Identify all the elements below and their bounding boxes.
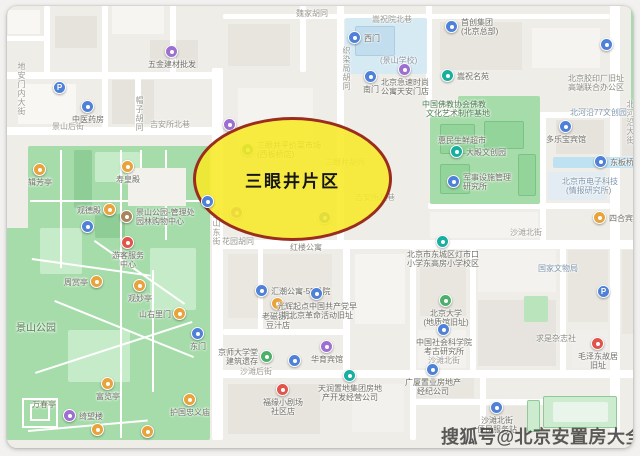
street-label: 景山公园 [16, 324, 56, 333]
poi-dot-icon [138, 284, 142, 288]
street-label: 惠民生鲜超市 [438, 136, 486, 145]
poi-dot-icon [325, 345, 329, 349]
road [7, 36, 45, 41]
poi-label: 中医药房 [28, 115, 148, 124]
building-block [228, 24, 290, 66]
poi-dot-icon [403, 68, 407, 72]
poi-dot-icon [348, 374, 352, 378]
poi-label: 五金建材批发 [112, 60, 232, 69]
poi-marker[interactable] [436, 235, 449, 248]
poi-marker[interactable] [490, 401, 503, 414]
park-path [152, 270, 154, 392]
poi-marker[interactable] [320, 340, 333, 353]
building-block [8, 10, 40, 34]
poi-label: 绮望楼 [79, 412, 103, 421]
poi-marker[interactable] [343, 369, 356, 382]
poi-dot-icon [38, 168, 42, 172]
poi-dot-icon [146, 430, 150, 434]
poi-dot-icon [450, 25, 454, 29]
poi-label: 首创集团(北京总部) [461, 18, 498, 36]
street-label: (情报研究所) [566, 186, 611, 195]
poi-dot-icon [596, 342, 600, 346]
street-label: 北河沿77文创园 [570, 108, 627, 117]
poi-label: 中国社会科学院考古研究所 [384, 338, 504, 356]
poi-marker[interactable] [348, 31, 361, 44]
poi-label: 观妙亭 [80, 294, 200, 303]
poi-marker[interactable] [364, 70, 377, 83]
poi-marker[interactable] [101, 377, 114, 390]
poi-dot-icon [108, 208, 112, 212]
poi-dot-icon [106, 382, 110, 386]
street-label: 北河沿大街 [626, 100, 633, 145]
building-block [622, 250, 633, 334]
poi-dot-icon [126, 165, 130, 169]
road [102, 6, 108, 129]
street-label: 红楼公寓 [290, 243, 322, 252]
poi-marker[interactable] [398, 63, 411, 76]
park-path [140, 150, 142, 170]
highlight-label: 三眼井片区 [245, 167, 340, 192]
poi-dot-icon [95, 280, 99, 284]
poi-dot-icon [564, 125, 568, 129]
building-block [112, 6, 164, 34]
poi-marker[interactable] [591, 337, 604, 350]
poi-label: 京师大学堂建筑遗存 [218, 348, 258, 366]
poi-dot-icon [605, 43, 609, 47]
poi-marker[interactable] [173, 307, 186, 320]
poi-dot-icon [281, 388, 285, 392]
poi-dot-icon [369, 75, 373, 79]
poi-marker[interactable] [165, 45, 178, 58]
poi-dot-icon [598, 216, 602, 220]
road [44, 6, 50, 74]
poi-dot-icon [206, 200, 210, 204]
poi-label: 广厦置业房地产经纪公司 [373, 378, 493, 396]
poi-marker[interactable]: P [53, 81, 66, 94]
poi-marker[interactable] [437, 323, 450, 336]
poi-dot-icon [86, 225, 90, 229]
park-area [553, 402, 608, 422]
poi-marker[interactable] [310, 287, 323, 300]
poi-dot-icon [353, 36, 357, 40]
street-label: 文化艺术制作基地 [426, 109, 490, 118]
poi-label: 东板桥 [610, 158, 633, 167]
road [212, 370, 633, 378]
poi-marker[interactable] [33, 163, 46, 176]
poi-marker[interactable] [90, 275, 103, 288]
street-label: 国家文物局 [538, 264, 578, 273]
road [212, 68, 223, 440]
poi-label: 富览亭 [48, 392, 168, 401]
street-label: 嵩祝院北巷 [372, 15, 412, 24]
poi-marker[interactable] [103, 203, 116, 216]
poi-dot-icon [188, 398, 192, 402]
poi-marker[interactable] [593, 211, 606, 224]
street-label: 北京市电子科技 [562, 177, 618, 186]
park-path [60, 150, 62, 268]
street-label: 求是杂志社 [536, 334, 576, 343]
parking-icon: P [57, 84, 62, 92]
poi-label: 光辉起点中国共产党早期北京革命活动旧址 [257, 302, 377, 320]
street-label: 沙滩北街 [510, 228, 542, 237]
poi-dot-icon [228, 123, 232, 127]
poi-label: 毛泽东故居旧址 [538, 352, 633, 370]
road [212, 240, 633, 249]
poi-dot-icon [431, 368, 435, 372]
street-label: 地安门内大街 [17, 62, 26, 116]
watermark-text: 搜狐号@北京安置房大全 [441, 423, 633, 448]
poi-marker[interactable] [81, 220, 94, 233]
poi-dot-icon [441, 240, 445, 244]
poi-label: 观德殿 [77, 206, 101, 215]
poi-label: 山右里门 [139, 310, 171, 319]
poi-marker[interactable] [191, 327, 204, 340]
poi-dot-icon [178, 312, 182, 316]
poi-marker[interactable] [63, 409, 76, 422]
poi-label: 景山公园-管理处园林购物中心 [136, 208, 195, 226]
poi-label: 西门 [364, 34, 380, 43]
street-label: 北京胶印厂旧址 [568, 74, 624, 83]
street-label: 魏家胡同 [296, 9, 328, 18]
poi-label: 军事设施管理研究所 [463, 173, 511, 191]
poi-marker[interactable] [426, 363, 439, 376]
poi-marker[interactable] [91, 423, 104, 436]
building-block [55, 16, 97, 48]
poi-marker[interactable] [201, 195, 214, 208]
park-area [631, 6, 633, 112]
poi-label: 四合宾馆 [609, 214, 633, 223]
poi-marker[interactable] [447, 175, 460, 188]
poi-marker[interactable] [120, 210, 133, 223]
poi-marker[interactable] [133, 279, 146, 292]
street-label: (景山学校) [380, 56, 417, 65]
poi-dot-icon [68, 414, 72, 418]
road [540, 112, 546, 242]
poi-label: 大殿文创园 [466, 148, 506, 157]
poi-label: 华育宾馆 [267, 355, 387, 364]
poi-dot-icon [455, 150, 459, 154]
street-label: 吉安所北巷 [150, 120, 190, 129]
poi-dot-icon [170, 50, 174, 54]
road [7, 72, 213, 79]
poi-dot-icon [599, 160, 603, 164]
poi-label: 游客服务中心 [68, 251, 188, 269]
poi-marker[interactable] [450, 145, 463, 158]
poi-dot-icon [315, 292, 319, 296]
poi-label: 辑芳亭 [7, 178, 100, 187]
poi-dot-icon [260, 289, 264, 293]
poi-dot-icon [444, 299, 448, 303]
street-label: 万春亭 [32, 400, 56, 409]
poi-marker[interactable] [255, 284, 268, 297]
poi-label: 南门 [311, 85, 431, 94]
park-area [524, 296, 548, 322]
poi-dot-icon [196, 332, 200, 336]
poi-label: 北京市东城区灯市口小学东高房小学校区 [383, 250, 503, 268]
poi-dot-icon [442, 328, 446, 332]
poi-label: 嵩祝名苑 [457, 72, 489, 81]
street-label: 花园胡同 [222, 237, 254, 246]
poi-label: 多乐宝宾馆 [506, 135, 626, 144]
parking-icon: P [601, 288, 606, 296]
poi-marker[interactable] [183, 393, 196, 406]
park-area [518, 154, 536, 196]
street-label: 高端联合办公区 [568, 83, 624, 92]
poi-marker[interactable] [594, 155, 607, 168]
map-canvas[interactable]: 三眼井片区 搜狐号@北京安置房大全 地安门内大街景山后街吉安所北巷帽子胡同景山东… [7, 6, 633, 448]
street-label: 沙滩后街 [240, 367, 272, 376]
poi-marker[interactable] [600, 38, 613, 51]
poi-label: 周赏亭 [64, 278, 88, 287]
poi-marker[interactable] [439, 294, 452, 307]
street-label: 中国佛教协会佛教 [422, 100, 486, 109]
poi-marker[interactable] [121, 236, 134, 249]
poi-dot-icon [452, 180, 456, 184]
street-label: 帽子胡同 [135, 96, 144, 132]
building-block [532, 28, 600, 68]
poi-marker[interactable] [141, 425, 154, 438]
park-path [128, 168, 186, 206]
poi-dot-icon [495, 406, 499, 410]
poi-marker[interactable] [121, 160, 134, 173]
poi-dot-icon [126, 241, 130, 245]
poi-dot-icon [125, 215, 129, 219]
poi-marker[interactable] [441, 69, 454, 82]
poi-dot-icon [96, 428, 100, 432]
poi-marker[interactable] [559, 120, 572, 133]
poi-marker[interactable]: P [597, 285, 610, 298]
poi-marker[interactable] [276, 383, 289, 396]
poi-marker[interactable] [445, 20, 458, 33]
poi-dot-icon [86, 105, 90, 109]
map-card: 三眼井片区 搜狐号@北京安置房大全 地安门内大街景山后街吉安所北巷帽子胡同景山东… [7, 6, 633, 448]
poi-dot-icon [446, 74, 450, 78]
highlight-ellipse: 三眼井片区 [193, 117, 392, 241]
poi-marker[interactable] [81, 100, 94, 113]
